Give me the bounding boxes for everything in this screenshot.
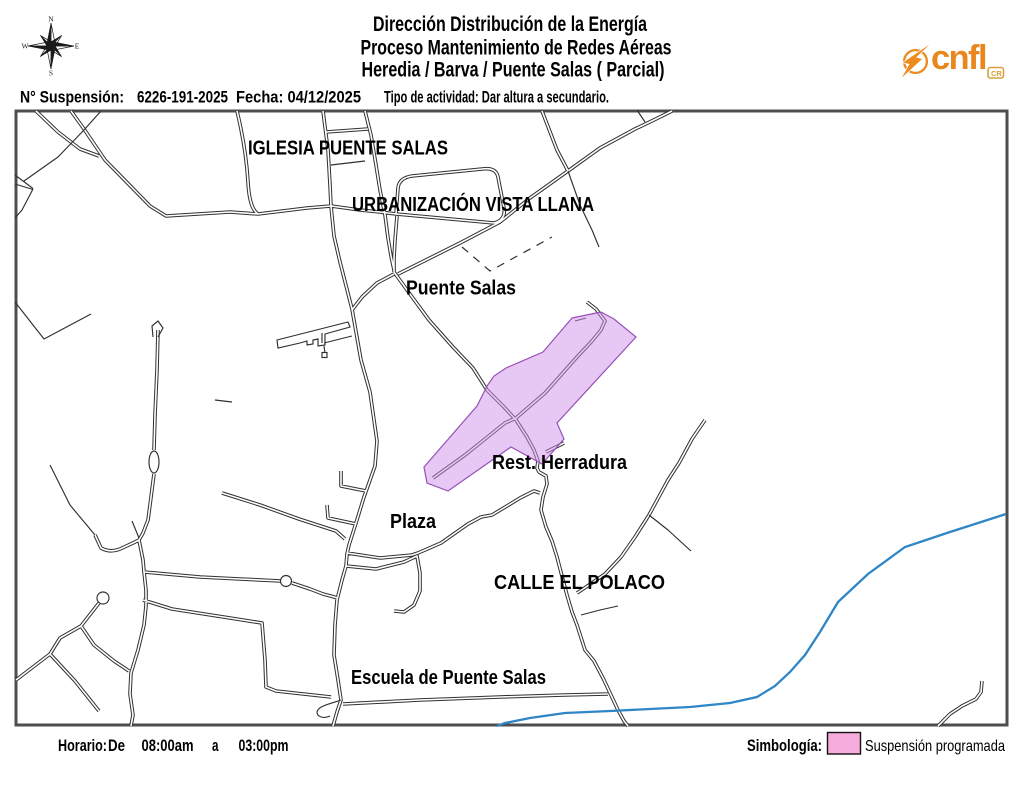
svg-text:Plaza: Plaza	[390, 511, 437, 533]
svg-text:URBANIZACIÓN VISTA LLANA: URBANIZACIÓN VISTA LLANA	[352, 192, 594, 216]
svg-text:CALLE EL POLACO: CALLE EL POLACO	[494, 572, 665, 594]
svg-text:Suspensión programada: Suspensión programada	[865, 738, 1005, 755]
svg-text:Heredia / Barva / Puente Salas: Heredia / Barva / Puente Salas ( Parcial…	[362, 59, 665, 82]
svg-text:Simbología:: Simbología:	[747, 736, 822, 755]
svg-text:03:00pm: 03:00pm	[239, 736, 289, 755]
svg-text:N: N	[48, 15, 54, 24]
svg-text:W: W	[21, 42, 29, 51]
svg-text:08:00am: 08:00am	[142, 736, 194, 755]
svg-text:Escuela de Puente Salas: Escuela de Puente Salas	[351, 667, 546, 689]
svg-text:Tipo de actividad: Dar altura: Tipo de actividad: Dar altura a secundar…	[384, 88, 609, 107]
svg-text:Rest. Herradura: Rest. Herradura	[492, 452, 628, 474]
svg-text:E: E	[75, 42, 80, 51]
svg-text:De: De	[108, 736, 125, 755]
svg-text:cnfl: cnfl	[931, 39, 986, 77]
svg-text:S: S	[49, 69, 53, 78]
svg-text:Fecha: 04/12/2025: Fecha: 04/12/2025	[236, 88, 361, 107]
svg-text:6226-191-2025: 6226-191-2025	[137, 88, 228, 107]
svg-text:Proceso Mantenimiento de Redes: Proceso Mantenimiento de Redes Aéreas	[361, 37, 672, 60]
svg-text:Dirección Distribución de la E: Dirección Distribución de la Energía	[373, 13, 647, 36]
svg-text:IGLESIA PUENTE SALAS: IGLESIA PUENTE SALAS	[248, 138, 448, 160]
svg-text:N° Suspensión:: N° Suspensión:	[20, 88, 124, 107]
svg-text:CR: CR	[991, 69, 1002, 78]
svg-text:Puente Salas: Puente Salas	[406, 278, 516, 300]
svg-text:a: a	[212, 736, 219, 755]
svg-text:Horario:: Horario:	[58, 736, 107, 755]
